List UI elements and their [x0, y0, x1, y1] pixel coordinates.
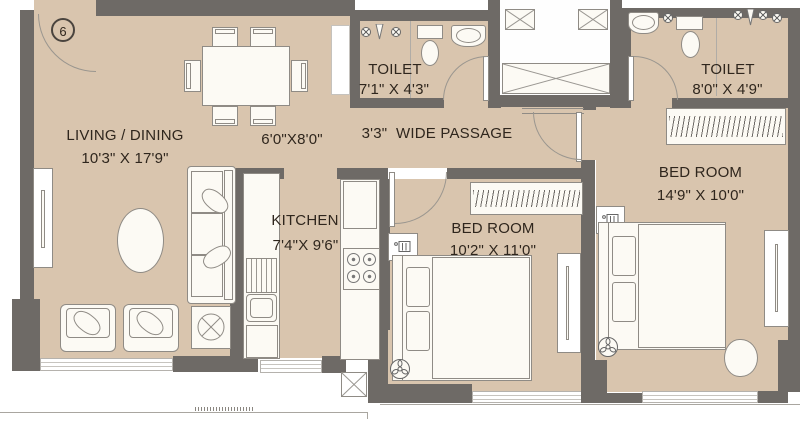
ceiling-fan-icon: [597, 336, 619, 358]
toilet1-dim: 7'1" X 4'3": [344, 81, 444, 98]
living-room-dim: 10'3" X 17'9": [40, 150, 210, 167]
wall: [788, 8, 800, 392]
tap-icon: [361, 27, 371, 37]
window-living: [40, 358, 173, 371]
window-bedroom-1: [472, 391, 587, 403]
sofa-back: [224, 170, 233, 300]
toilet2-dim: 8'0" X 4'9": [675, 81, 780, 98]
washbasin-bowl: [456, 28, 481, 43]
bedroom2-label: BED ROOM: [628, 164, 773, 181]
bed-headboard: [598, 222, 609, 350]
dining-chair: [184, 60, 201, 92]
dresser: [557, 253, 581, 353]
refrigerator: [246, 325, 278, 358]
wc-cistern: [417, 25, 443, 39]
dresser-mirror: [566, 266, 569, 340]
wall: [672, 98, 800, 108]
gas-stove-icon: [343, 248, 380, 290]
shower-head-icon: [375, 24, 384, 40]
window-kitchen: [260, 360, 322, 373]
wall: [350, 98, 444, 108]
decor-table: [191, 306, 231, 349]
dresser-mirror: [775, 244, 778, 312]
toilet2-label: TOILET: [678, 61, 778, 78]
kitchen-sink-basin: [250, 298, 273, 318]
coffee-table: [117, 208, 164, 273]
drainboard: [246, 258, 277, 293]
duct-icon: [505, 9, 535, 30]
bedroom1-dim: 10'2" X 11'0": [418, 242, 568, 259]
tap-icon: [391, 27, 401, 37]
bed-duvet: [638, 224, 726, 348]
passage-label: 3'3" WIDE PASSAGE: [337, 125, 537, 142]
dining-chair: [212, 106, 238, 126]
dining-chair: [250, 27, 276, 47]
floor-plan-canvas: 6 LIVING / DINING 10'3" X 17'9" 6'0"X8'0…: [0, 0, 800, 421]
shower-head-icon: [746, 9, 755, 26]
duct-icon: [341, 372, 367, 397]
wall-column: [778, 340, 800, 392]
window-bedroom-2: [642, 391, 758, 403]
tap-icon: [733, 10, 743, 20]
wall: [337, 168, 388, 179]
wall: [758, 391, 788, 403]
dining-chair: [291, 60, 308, 92]
bed-pillow: [612, 282, 636, 322]
living-room-label: LIVING / DINING: [40, 127, 210, 144]
chair: [724, 339, 758, 377]
tap-icon: [663, 13, 673, 23]
wall: [96, 0, 355, 16]
foyer-dim: 6'0"X8'0": [247, 131, 337, 148]
bed-pillow: [406, 311, 430, 351]
tv: [41, 190, 45, 248]
wall-column: [12, 299, 40, 371]
boundary-line-left: [0, 412, 368, 413]
wall: [447, 168, 583, 179]
wall: [388, 384, 472, 403]
tap-icon: [772, 13, 782, 23]
wall: [20, 10, 34, 300]
wc-icon: [681, 31, 700, 58]
lift-icon: [502, 63, 610, 94]
kitchen-label: KITCHEN: [255, 212, 355, 229]
bedroom2-dim: 14'9" X 10'0": [628, 187, 773, 204]
bedroom1-label: BED ROOM: [418, 220, 568, 237]
wc-cistern: [676, 16, 703, 30]
ceiling-fan-icon: [389, 358, 411, 380]
kitchen-dim: 7'4"X 9'6": [253, 237, 358, 254]
tap-icon: [758, 10, 768, 20]
toilet1-label: TOILET: [350, 61, 440, 78]
bed-pillow: [612, 236, 636, 276]
hatch-marks: [195, 407, 253, 411]
dining-chair: [212, 27, 238, 47]
floor-bedroom2-door: [583, 110, 596, 160]
wall: [607, 393, 642, 403]
dining-chair: [250, 106, 276, 126]
duct-icon: [578, 9, 608, 30]
boundary-line-right: [380, 404, 800, 405]
wall: [583, 96, 596, 110]
wall: [352, 10, 490, 21]
wall: [581, 360, 607, 403]
boundary-line-tick: [367, 412, 368, 419]
wardrobe-icon: [666, 108, 786, 145]
bed-duvet: [432, 257, 530, 379]
washbasin-bowl: [632, 15, 655, 30]
bed-pillow: [406, 267, 430, 307]
wardrobe-icon: [470, 182, 583, 215]
dining-table: [202, 46, 290, 106]
unit-number-badge: 6: [51, 18, 75, 42]
